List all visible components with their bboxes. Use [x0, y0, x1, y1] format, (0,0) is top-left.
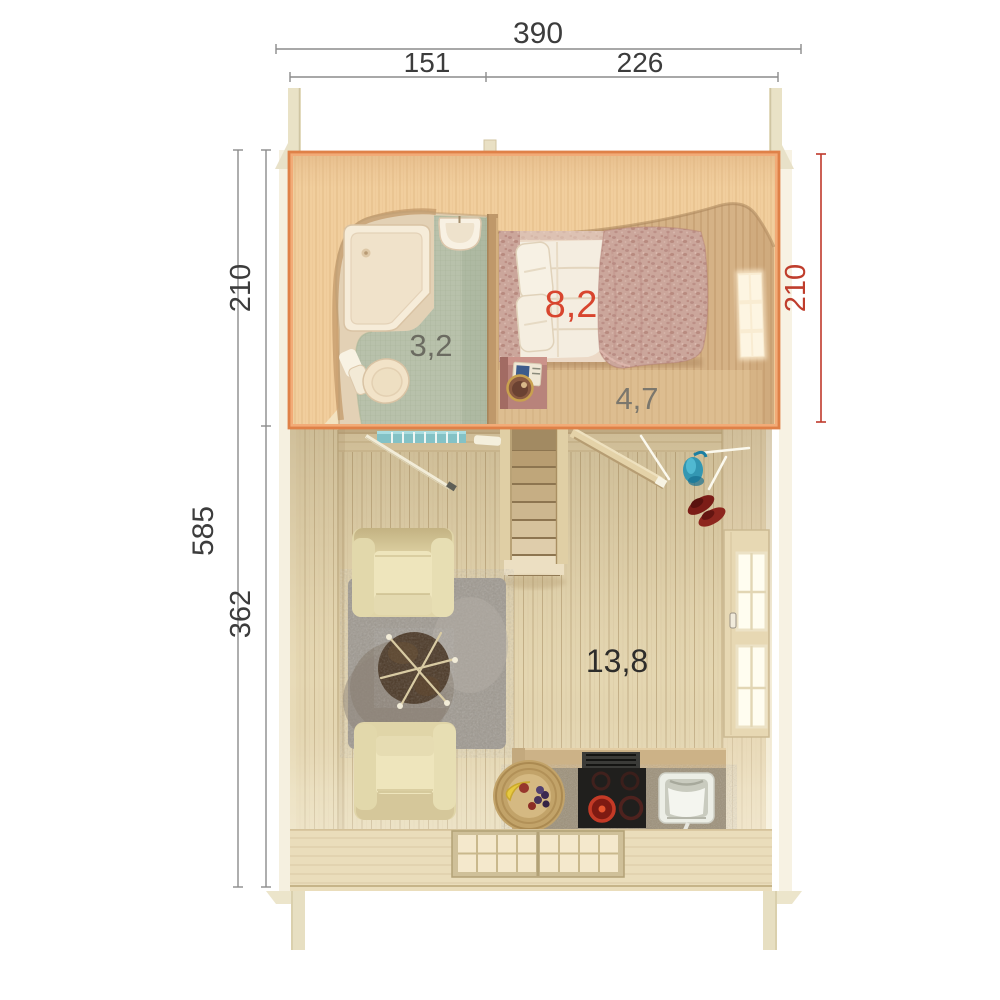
- svg-text:390: 390: [513, 17, 563, 50]
- svg-text:4,7: 4,7: [615, 381, 658, 416]
- svg-text:151: 151: [404, 47, 451, 78]
- svg-text:362: 362: [225, 590, 257, 638]
- svg-text:13,8: 13,8: [586, 643, 648, 679]
- svg-text:210: 210: [780, 264, 812, 312]
- svg-text:226: 226: [617, 47, 664, 78]
- svg-text:210: 210: [225, 264, 257, 312]
- svg-text:8,2: 8,2: [545, 284, 598, 326]
- svg-text:585: 585: [187, 506, 220, 556]
- svg-text:3,2: 3,2: [409, 328, 452, 363]
